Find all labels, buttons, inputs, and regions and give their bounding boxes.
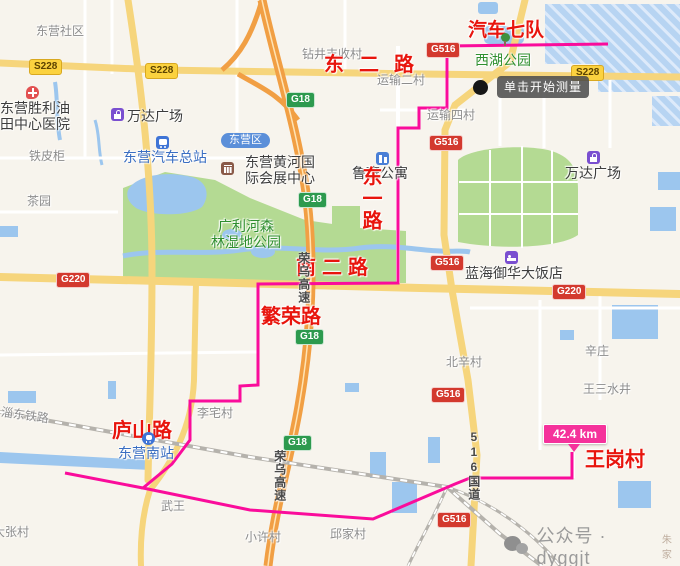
badge-dongying-district: 东营区 bbox=[221, 133, 270, 148]
distance-value: 42.4 km bbox=[553, 427, 597, 441]
village-dongying-shequ: 东营社区 bbox=[36, 25, 84, 39]
badge-s228-2: S228 bbox=[145, 63, 178, 79]
badge-g516-4: G516 bbox=[431, 387, 465, 403]
measure-tooltip: 单击开始测量 bbox=[497, 76, 589, 98]
poi-lanhai-hotel[interactable]: 蓝海御华大饭店 bbox=[465, 265, 563, 281]
poi-guanglihe-wetland-park[interactable]: 广利河森 林湿地公园 bbox=[211, 218, 281, 250]
route-label-wanggang-cun: 王岗村 bbox=[585, 449, 645, 472]
badge-g516-2: G516 bbox=[429, 135, 463, 151]
badge-g516-1: G516 bbox=[426, 42, 460, 58]
apartment-icon[interactable] bbox=[376, 152, 389, 165]
mall-icon-west[interactable] bbox=[111, 108, 124, 121]
village-zhangcun: 大张村 bbox=[0, 526, 29, 540]
watermark: 公众号 · dyggjt 朱家 bbox=[504, 522, 680, 566]
badge-g18-4: G18 bbox=[283, 435, 312, 451]
train-icon[interactable] bbox=[142, 432, 155, 445]
village-xinzhuang: 辛庄 bbox=[585, 345, 609, 359]
village-beixin: 北辛村 bbox=[446, 356, 482, 370]
poi-wanda-plaza-west[interactable]: 万达广场 bbox=[127, 108, 183, 124]
poi-xihu-park[interactable]: 西湖公园 bbox=[475, 52, 531, 68]
route-label-fanrong-lu: 繁荣路 bbox=[261, 306, 321, 329]
badge-g516-3: G516 bbox=[430, 255, 464, 271]
distance-balloon: 42.4 km bbox=[543, 424, 607, 444]
tree-icon bbox=[498, 33, 511, 46]
route-label-dong-er-lu: 东二路 bbox=[324, 54, 429, 77]
badge-s228-1: S228 bbox=[29, 59, 62, 75]
watermark-text: 公众号 · dyggjt bbox=[536, 522, 654, 566]
badge-g18-1: G18 bbox=[286, 92, 315, 108]
poi-dongying-south-station[interactable]: 东营南站 bbox=[118, 445, 174, 461]
roadname-516-guodao: 516国道 bbox=[466, 430, 480, 501]
wechat-icon bbox=[504, 534, 529, 558]
village-lizhai: 李宅村 bbox=[197, 407, 233, 421]
roadname-rongwu-expwy-south: 荣乌高速 bbox=[272, 450, 286, 502]
hospital-icon[interactable] bbox=[26, 86, 39, 99]
badge-g220-1: G220 bbox=[56, 272, 90, 288]
hotel-icon[interactable] bbox=[505, 251, 518, 264]
village-wangsan-shuijing: 王三水井 bbox=[583, 383, 631, 397]
badge-g18-3: G18 bbox=[295, 329, 324, 345]
measure-point-dot bbox=[473, 80, 488, 95]
badge-g516-5: G516 bbox=[437, 512, 471, 528]
poi-shengli-hospital[interactable]: 东营胜利油 田中心医院 bbox=[0, 100, 70, 132]
village-chayuan: 茶园 bbox=[27, 195, 51, 209]
poi-bus-terminal[interactable]: 东营汽车总站 bbox=[123, 149, 207, 165]
bus-icon[interactable] bbox=[156, 136, 169, 149]
railway-name: 淄东铁路 bbox=[0, 406, 49, 426]
badge-g18-2: G18 bbox=[298, 192, 327, 208]
roadname-rongwu-expwy-north: 荣乌高速 bbox=[296, 252, 310, 304]
mall-icon-east[interactable] bbox=[587, 151, 600, 164]
poi-exhibition-center[interactable]: 东营黄河国 际会展中心 bbox=[245, 154, 315, 186]
village-tiepigui: 铁皮柜 bbox=[29, 150, 65, 164]
village-xiaoxu: 小许村 bbox=[245, 531, 281, 545]
village-wuwang: 武王 bbox=[161, 500, 185, 514]
route-label-dong-yi-lu: 东一路 bbox=[358, 166, 381, 232]
exhibition-icon[interactable] bbox=[221, 162, 234, 175]
watermark-suffix: 朱家 bbox=[662, 531, 680, 561]
village-yunshu-4: 运输四村 bbox=[427, 109, 475, 123]
village-qiujia: 邱家村 bbox=[330, 528, 366, 542]
poi-wanda-plaza-east[interactable]: 万达广场 bbox=[565, 165, 621, 181]
map-canvas[interactable]: 东营社区钻井丰收村运输二村运输四村铁皮柜茶园北辛村辛庄王三水井李宅村武王小许村邱… bbox=[0, 0, 680, 566]
badge-g220-2: G220 bbox=[552, 284, 586, 300]
